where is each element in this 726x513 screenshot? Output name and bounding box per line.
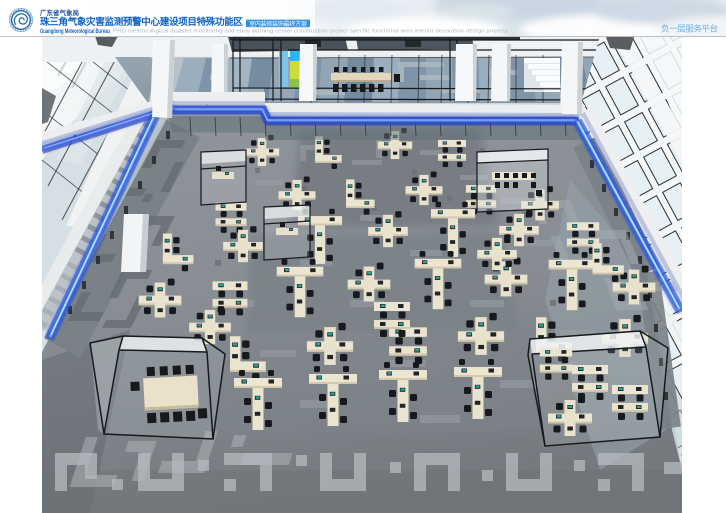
svg-text:广东省气象局: 广东省气象局 (40, 8, 79, 17)
svg-text:室内装修装饰最终方案: 室内装修装饰最终方案 (249, 20, 308, 28)
svg-text:PRD meteorological disaster mo: PRD meteorological disaster monitoring a… (113, 29, 508, 35)
svg-text:Guangdong Meteorological Burea: Guangdong Meteorological Bureau (40, 29, 110, 35)
svg-text:负一层服务平台: 负一层服务平台 (661, 23, 718, 34)
svg-text:珠三角气象灾害监测预警中心建设项目特殊功能区: 珠三角气象灾害监测预警中心建设项目特殊功能区 (40, 16, 243, 28)
